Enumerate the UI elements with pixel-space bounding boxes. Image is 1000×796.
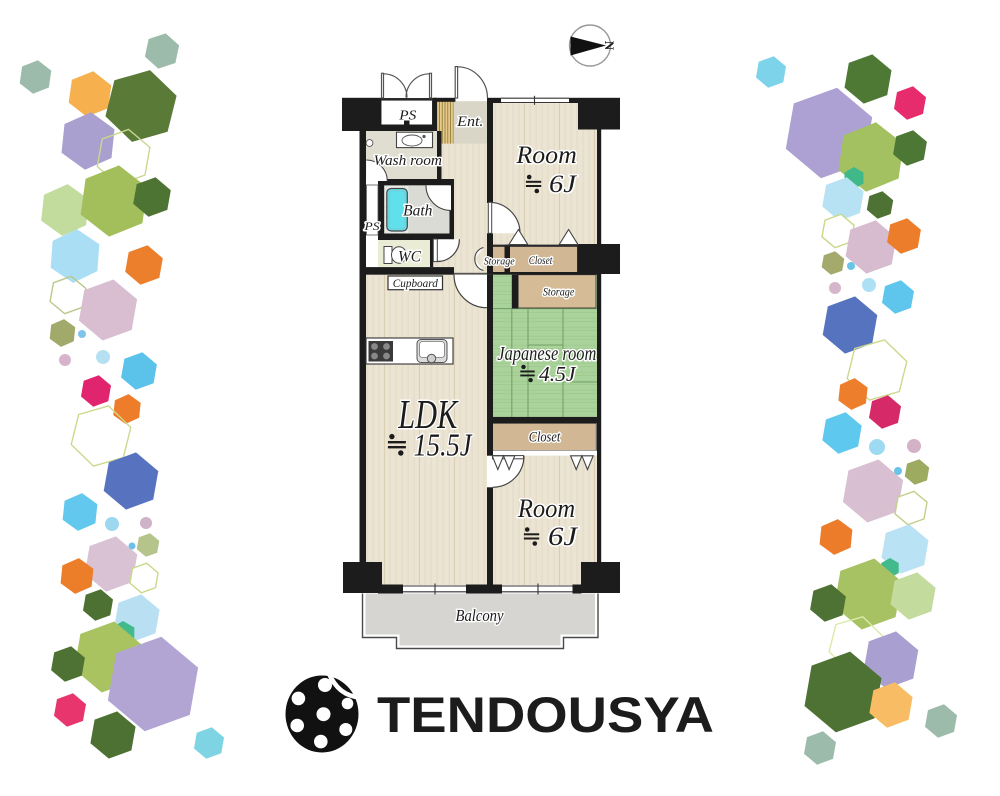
svg-text:Room: Room [517,494,575,523]
svg-text:Room: Room [515,142,576,169]
svg-text:Bath: Bath [403,203,432,220]
svg-text:Closet: Closet [529,430,561,446]
svg-text:Balcony: Balcony [456,606,504,625]
svg-text:Cupboard: Cupboard [393,276,439,290]
svg-text:4.5J: 4.5J [539,362,577,386]
svg-text:Ent.: Ent. [456,114,483,130]
svg-text:Wash room: Wash room [374,153,442,169]
svg-text:Storage: Storage [543,285,575,299]
svg-text:Storage: Storage [484,256,515,268]
svg-text:Closet: Closet [529,253,553,267]
svg-text:TENDOUSYA: TENDOUSYA [377,687,714,743]
svg-text:WC: WC [398,249,421,266]
svg-text:PS: PS [363,219,379,233]
svg-text:6J: 6J [548,522,579,551]
svg-text:6J: 6J [549,171,578,198]
svg-text:N: N [602,41,617,51]
svg-text:15.5J: 15.5J [414,427,473,463]
